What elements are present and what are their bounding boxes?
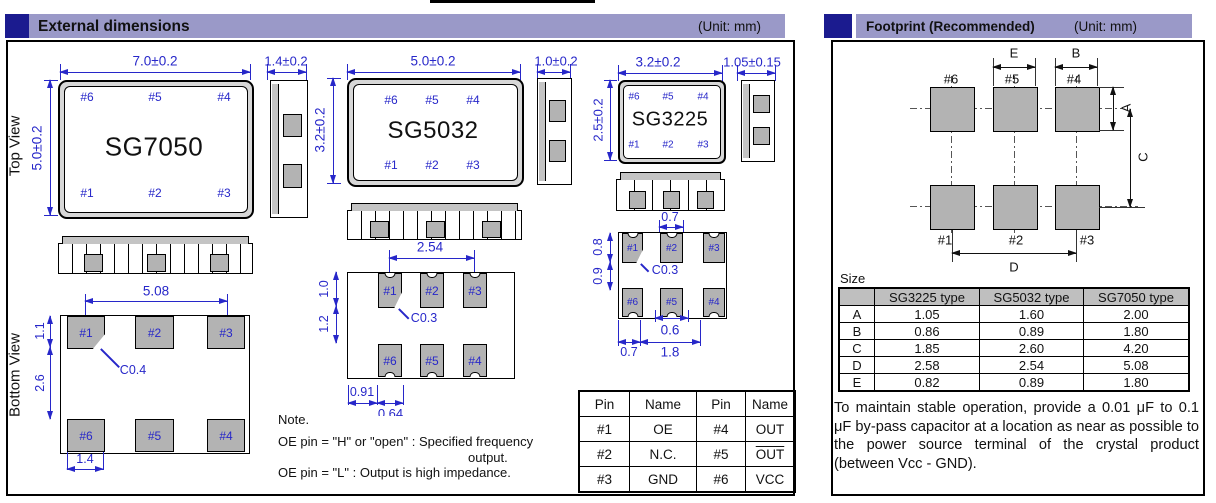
footprint-dim-b-label: B [1072, 46, 1081, 61]
sg7050-bottom-pad-3: #3 [207, 316, 245, 349]
pin-col-header: Pin [697, 391, 746, 417]
sg5032-width-dim [347, 72, 520, 73]
sg5032-pin-6: #6 [384, 93, 397, 107]
sg5032-pin-4: #4 [466, 93, 479, 107]
sg7050-side-view [270, 80, 308, 218]
sg7050-pin-4: #4 [217, 90, 230, 104]
sg5032-bottom-pad-5: #5 [420, 344, 444, 377]
sg3225-height-dim [610, 80, 611, 160]
footprint-label-4: #4 [1067, 72, 1081, 87]
sg3225-b2-dim [640, 342, 700, 343]
pin-table-row: #3GND #6VCC [579, 467, 795, 493]
sg7050-side-dim [267, 72, 306, 73]
sg5032-pin-2: #2 [425, 158, 438, 172]
footprint-dim-c [1130, 109, 1131, 207]
footprint-pad-5 [993, 87, 1038, 132]
footprint-label-3: #3 [1080, 233, 1094, 248]
pin-table-row: #2N.C. #5OUT [579, 442, 795, 467]
sg3225-padtop-dim [659, 227, 683, 228]
sg3225-bottom-pad-2: #2 [660, 233, 683, 263]
datasheet-page: External dimensions (Unit: mm) Footprint… [0, 0, 1216, 503]
right-header-accent [824, 14, 852, 38]
sg5032-pin-1: #1 [384, 158, 397, 172]
sg3225-name: SG3225 [632, 109, 708, 132]
footprint-note: To maintain stable operation, provide a … [834, 399, 1199, 473]
sg5032-side-dim-label: 1.0±0.2 [534, 54, 577, 69]
left-header-title: External dimensions [38, 18, 190, 36]
sg5032-dim-v2 [336, 306, 337, 343]
pin-col-header: Pin [579, 391, 630, 417]
sg7050-top-view-label: Top View [7, 116, 24, 177]
sg5032-bottom-pad-1: #1 [378, 273, 402, 308]
footprint-dim-d [952, 253, 1076, 254]
note-title: Note. [278, 412, 309, 427]
sg7050-pitch-dim [85, 301, 227, 302]
sg5032-bottom-pad-6: #6 [378, 344, 402, 377]
size-row-a: A1.05 1.602.00 [839, 306, 1189, 323]
sg3225-dim-v2-label: 0.9 [591, 267, 605, 284]
sg5032-bottom-pad-4: #4 [463, 344, 487, 377]
sg7050-dim-v1-label: 1.1 [33, 322, 47, 339]
sg7050-bottom-pad-1: #1 [67, 316, 105, 349]
size-row-e: E0.82 0.891.80 [839, 374, 1189, 392]
size-corner-cell [839, 288, 875, 306]
sg3225-bottom-pad-3: #3 [703, 233, 725, 263]
sg3225-dim-v1 [610, 233, 611, 262]
sg7050-padw-dim [67, 469, 103, 470]
footprint-pad-6 [930, 87, 975, 132]
footprint-pad-1 [930, 185, 975, 230]
sg7050-width-dim [60, 72, 250, 73]
sg3225-bottom-pad-6: #6 [622, 288, 643, 317]
sg7050-pin-5: #5 [148, 90, 161, 104]
sg5032-bottom-pad-2: #2 [420, 273, 444, 308]
right-header-title: Footprint (Recommended) [866, 19, 1035, 34]
sg5032-b2-dim [377, 403, 403, 404]
sg5032-bottom-view: #1 #2 #3 #6 #5 #4 [347, 272, 515, 379]
sg7050-bottom-pad-5: #5 [135, 419, 174, 452]
sg7050-pitch-dim-label: 5.08 [143, 284, 169, 299]
sg3225-side-view [741, 80, 775, 162]
sg5032-side-lid [539, 82, 546, 181]
sg5032-pitch-dim-label: 2.54 [417, 240, 443, 255]
sg3225-pin-1: #1 [628, 140, 639, 151]
sg5032-edge-view [347, 210, 522, 240]
sg3225-side-dim [737, 73, 775, 74]
sg5032-bottom-pad-3: #3 [463, 273, 487, 308]
sg3225-dim-v2 [610, 262, 611, 290]
sg7050-dim-v1 [50, 316, 51, 347]
footprint-label-1: #1 [938, 233, 952, 248]
sg5032-height-dim-label: 3.2±0.2 [313, 108, 328, 153]
sg5032-height-dim [333, 78, 334, 183]
footprint-dim-c-label: C [1136, 152, 1151, 161]
footprint-pad-2 [993, 185, 1038, 230]
footprint-dim-e [993, 67, 1035, 68]
left-header-accent [5, 14, 29, 38]
sg7050-width-dim-label: 7.0±0.2 [133, 54, 178, 69]
sg3225-pin-3: #3 [697, 140, 708, 151]
footprint-dim-d-label: D [1009, 260, 1018, 275]
sg3225-edge-view [616, 179, 725, 211]
footprint-label-6: #6 [944, 72, 958, 87]
sg5032-dim-v1 [336, 272, 337, 306]
footprint-dim-e-label: E [1010, 46, 1019, 61]
sg3225-padtop-dim-label: 0.7 [661, 210, 678, 224]
size-row-b: B0.86 0.891.80 [839, 323, 1189, 340]
sg3225-pin-6: #6 [628, 92, 639, 103]
sg7050-edge-view [58, 243, 253, 274]
sg7050-height-dim [50, 80, 51, 215]
size-row-d: D2.58 2.545.08 [839, 357, 1189, 374]
sg7050-dim-v2-label: 2.6 [33, 374, 47, 391]
pin-name-table: Pin Name Pin Name #1OE #4OUT #2N.C. #5OU… [578, 390, 796, 493]
sg3225-side-dim-label: 1.05±0.15 [723, 55, 781, 70]
right-header-unit: (Unit: mm) [1074, 19, 1137, 34]
sg7050-chamfer-label: C0.4 [120, 363, 146, 377]
sg3225-bottom-pad-5: #5 [660, 288, 683, 317]
sg5032-b2-dim-label-clipped: 0.64 [376, 407, 405, 416]
sg3225-b1-dim-label: 0.7 [620, 345, 637, 359]
sg7050-bottom-pad-6: #6 [67, 419, 105, 452]
sg7050-pin-2: #2 [148, 186, 161, 200]
footprint-size-table: SG3225 type SG5032 type SG7050 type A1.0… [838, 287, 1190, 392]
size-col-sg3225: SG3225 type [875, 288, 980, 306]
sg5032-pin-3: #3 [466, 158, 479, 172]
sg3225-dim-v1-label: 0.8 [591, 238, 605, 255]
sg7050-pin-6: #6 [80, 90, 93, 104]
sg3225-width-dim [618, 73, 722, 74]
sg5032-pitch-dim [389, 258, 474, 259]
sg5032-chamfer-label: C0.3 [411, 311, 437, 325]
note-line-3: OE pin = "L" : Output is high impedance. [278, 465, 511, 480]
sg5032-b1-dim-label: 0.91 [350, 385, 374, 399]
sg7050-side-dim-label: 1.4±0.2 [264, 54, 307, 69]
footprint-label-2: #2 [1009, 233, 1023, 248]
sg3225-b2-dim-label: 1.8 [661, 345, 680, 360]
sg5032-side-view [537, 78, 572, 185]
sg7050-bottom-view-label: Bottom View [7, 333, 24, 417]
sg3225-mid-dim [655, 318, 688, 319]
sg3225-edge-lid [620, 172, 721, 180]
sg7050-height-dim-label: 5.0±0.2 [30, 126, 45, 171]
sg7050-bottom-view: #1 #2 #3 #6 #5 #4 [60, 315, 250, 454]
note-line-1: OE pin = "H" or "open" : Specified frequ… [278, 434, 533, 449]
sg5032-width-dim-label: 5.0±0.2 [411, 54, 456, 69]
sg5032-dim-v2-label: 1.2 [317, 315, 331, 332]
size-table-title: Size [840, 271, 865, 286]
sg3225-bottom-pad-4: #4 [703, 288, 725, 317]
sg7050-bottom-pad-4: #4 [207, 419, 245, 452]
sg5032-dim-v1-label: 1.0 [317, 280, 331, 297]
sg7050-pin-3: #3 [217, 186, 230, 200]
size-col-sg5032: SG5032 type [980, 288, 1084, 306]
sg3225-pin-2: #2 [662, 140, 673, 151]
sg3225-height-dim-label: 2.5±0.2 [591, 98, 606, 141]
sg7050-side-lid [272, 84, 279, 214]
size-col-sg7050: SG7050 type [1084, 288, 1190, 306]
sg7050-padw-dim-label: 1.4 [76, 452, 93, 466]
note-line-2: output. [468, 450, 508, 465]
sg3225-side-lid [743, 84, 750, 158]
footprint-dim-a [1113, 87, 1114, 130]
sg7050-edge-lid [62, 236, 249, 244]
sg7050-dim-v2 [50, 347, 51, 419]
left-header-unit: (Unit: mm) [698, 19, 761, 34]
sg5032-b1-dim [348, 403, 377, 404]
size-row-c: C1.85 2.604.20 [839, 340, 1189, 357]
footprint-pad-4 [1055, 87, 1100, 132]
name-col-header: Name [630, 391, 697, 417]
sg3225-width-dim-label: 3.2±0.2 [636, 55, 681, 70]
sg5032-pin-5: #5 [425, 93, 438, 107]
name-col-header: Name [746, 391, 796, 417]
sg3225-pin-4: #4 [697, 92, 708, 103]
sg5032-edge-lid [351, 203, 518, 211]
footprint-pad-3 [1055, 185, 1100, 230]
page-crop-line [430, 0, 595, 3]
sg3225-bottom-pad-1: #1 [622, 233, 643, 263]
sg7050-bottom-pad-2: #2 [135, 316, 174, 349]
sg5032-side-dim [537, 72, 570, 73]
sg7050-name: SG7050 [105, 132, 203, 163]
sg5032-name: SG5032 [387, 117, 478, 145]
sg3225-mid-dim-label: 0.6 [661, 323, 680, 338]
sg7050-pin-1: #1 [80, 186, 93, 200]
sg3225-chamfer-label: C0.3 [652, 263, 678, 277]
sg3225-b1-dim [618, 342, 640, 343]
pin-table-row: #1OE #4OUT [579, 417, 795, 442]
footprint-label-5: #5 [1005, 72, 1019, 87]
footprint-dim-b [1055, 67, 1097, 68]
sg3225-pin-5: #5 [662, 92, 673, 103]
